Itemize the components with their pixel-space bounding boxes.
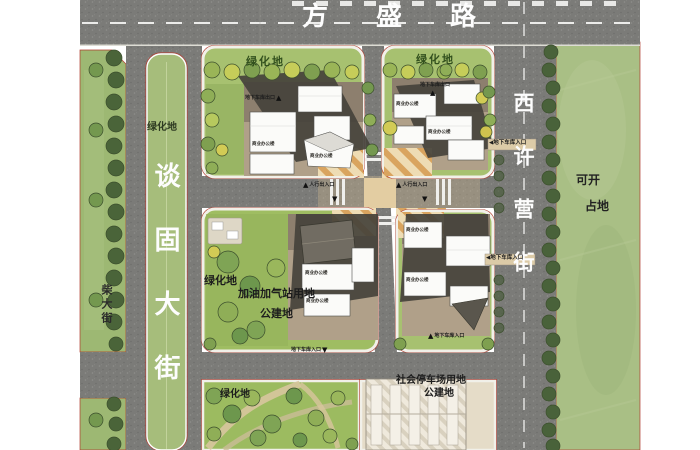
garage-entrance-south-west: 地下车库入口 ▼ (291, 347, 327, 354)
triangle-up-icon: ▲ (428, 333, 433, 340)
garage-exit-nw: 地下车库出口 ▲ (245, 95, 281, 102)
park-green-label: 绿化地 (220, 390, 250, 400)
building-label: 商业办公楼 (406, 229, 429, 234)
gas-station-label-line2: 公建地 (260, 308, 293, 319)
green-label-ne: 绿化地 (416, 54, 455, 65)
pedestrian-entrance-east-text: 人行出入口 (402, 183, 427, 188)
green-label-sw: 绿化地 (204, 275, 237, 286)
triangle-up-icon: ▲ (396, 182, 401, 189)
site-plan-screenshot: 方盛路 谈固大街 西许营街 柴大街 绿化地 绿化地 绿化地 绿化地 加油加气站用… (0, 0, 700, 450)
garage-entrance-east-upper: ◀地下车库入口 (489, 141, 526, 147)
garage-entrance-south-east-text: 地下车库入口 (434, 334, 464, 339)
pedestrian-entrance-east: ▲ 人行出入口 (396, 182, 427, 189)
garage-entrance-east-upper-text: ◀地下车库入口 (489, 141, 526, 147)
building-label: 商业办公楼 (406, 279, 429, 284)
triangle-up-icon: ▲ (303, 182, 308, 189)
garage-entrance-east-lower-text: ◀地下车库入口 (486, 256, 523, 262)
garage-entrance-south-east: ▲ 地下车库入口 (428, 333, 464, 340)
triangle-down-icon: ▼ (322, 347, 327, 354)
site-plan-artwork (0, 0, 700, 450)
building-label: 商业办公楼 (428, 131, 451, 136)
garage-exit-ne: 地下车库出口 (420, 83, 450, 88)
garage-entrance-east-lower: ◀地下车库入口 (486, 256, 523, 262)
building-label: 商业办公楼 (305, 272, 328, 277)
east-field-label-line1: 可开 (576, 174, 600, 186)
median-green-label: 绿化地 (147, 123, 177, 133)
triangle-up-icon: ▲ (276, 95, 281, 102)
top-road-name: 方盛路 (302, 4, 524, 30)
garage-exit-ne-text: 地下车库出口 (420, 83, 450, 88)
building-label: 商业办公楼 (252, 143, 275, 148)
parking-lot-label-line2: 公建地 (424, 389, 454, 399)
east-road-name: 西许营街 (512, 92, 533, 304)
building-label: 商业办公楼 (396, 103, 419, 108)
garage-exit-ne-triangle: ▲ (430, 90, 435, 97)
east-field-label-line2: 占地 (585, 200, 609, 212)
pedestrian-triangle-down-west: ▼ (332, 196, 337, 203)
branch-road-name: 柴大街 (101, 284, 112, 326)
building-label: 商业办公楼 (310, 155, 333, 160)
green-label-nw: 绿化地 (246, 56, 285, 67)
parking-lot-label-line1: 社会停车场用地 (396, 376, 466, 386)
building-label: 商业办公楼 (306, 300, 329, 305)
garage-exit-nw-text: 地下车库出口 (245, 96, 275, 101)
pedestrian-entrance-west: ▲ 人行出入口 (303, 182, 334, 189)
west-road-name: 谈固大街 (152, 162, 178, 418)
gas-station-label-line1: 加油加气站用地 (238, 288, 315, 299)
pedestrian-triangle-down-east: ▼ (422, 196, 427, 203)
pedestrian-entrance-west-text: 人行出入口 (309, 183, 334, 188)
garage-entrance-south-west-text: 地下车库入口 (291, 348, 321, 353)
